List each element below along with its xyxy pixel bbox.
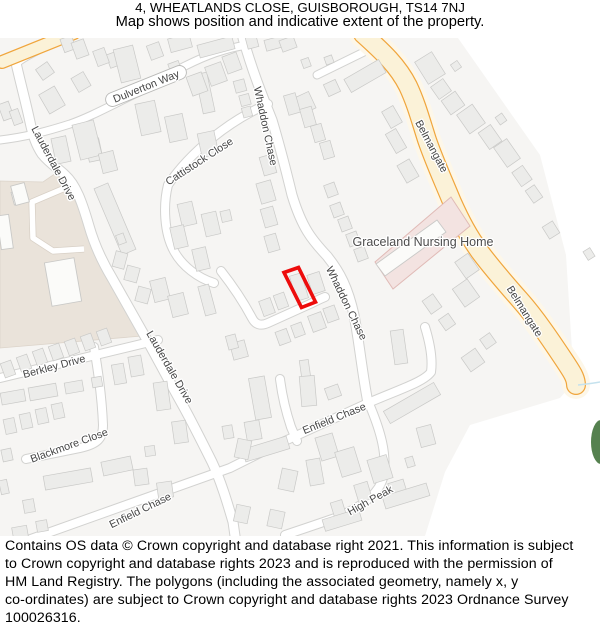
svg-text:Graceland Nursing Home: Graceland Nursing Home bbox=[352, 235, 493, 249]
